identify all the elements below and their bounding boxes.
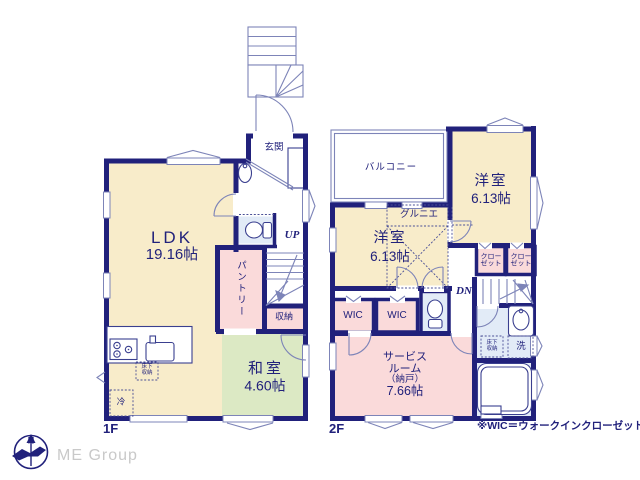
bathtub bbox=[478, 364, 532, 415]
bow-window-mark bbox=[227, 423, 273, 430]
bay-window-mark bbox=[537, 177, 543, 229]
bedroom-left-name: 洋室 bbox=[374, 231, 407, 246]
toilet1-fixture bbox=[246, 222, 272, 238]
washitsu-size: 4.60帖 bbox=[244, 379, 285, 394]
floorplan-page: 玄関 LDK 19.16帖 パントリー UP 収納 和室 4.60帖 床下収納 … bbox=[0, 0, 640, 480]
window bbox=[167, 158, 220, 165]
window bbox=[104, 192, 111, 218]
wic1-label: WIC bbox=[343, 311, 362, 322]
window bbox=[365, 202, 387, 209]
window bbox=[531, 177, 538, 229]
entrance-label: 玄関 bbox=[264, 143, 283, 153]
bay-window-mark bbox=[537, 336, 542, 356]
logo-text: ME Group bbox=[57, 448, 138, 465]
stairs-down-label: DN bbox=[456, 286, 472, 298]
compass-n-label: N bbox=[28, 436, 35, 445]
window bbox=[104, 273, 111, 298]
staircase-down bbox=[483, 279, 533, 304]
floor2-plan bbox=[330, 118, 544, 429]
faucet bbox=[150, 336, 156, 343]
staircase-up bbox=[266, 253, 304, 306]
ldk-name: LDK bbox=[151, 229, 193, 247]
bow-window-mark bbox=[368, 423, 402, 429]
ldk-size: 19.16帖 bbox=[146, 247, 199, 263]
service-room-label: サービス ルーム （納戸） 7.66帖 bbox=[383, 352, 427, 398]
pantry-label: パントリー bbox=[235, 260, 245, 318]
balcony-label: バルコニー bbox=[365, 163, 417, 173]
bedroom-left-size: 6.13帖 bbox=[370, 250, 410, 264]
fridge-label: 冷 bbox=[117, 398, 126, 407]
window bbox=[410, 416, 453, 423]
floor1-label: 1F bbox=[103, 422, 118, 436]
window bbox=[303, 190, 310, 222]
window bbox=[130, 416, 187, 423]
stove bbox=[110, 339, 137, 360]
sink bbox=[146, 343, 174, 362]
exterior-stairs bbox=[248, 27, 303, 97]
entrance-door-arc bbox=[256, 95, 293, 132]
toilet2-fixture bbox=[428, 300, 443, 328]
window bbox=[531, 336, 538, 356]
window bbox=[365, 416, 402, 423]
laundry-label: 洗 bbox=[516, 342, 526, 352]
floorplan-drawing bbox=[0, 0, 640, 480]
storage-label: 収納 bbox=[275, 312, 293, 321]
floor2-label: 2F bbox=[329, 422, 344, 436]
grenier-label: グルニエ bbox=[400, 210, 438, 220]
washroom-basin bbox=[509, 306, 534, 336]
entrance-step-edge bbox=[246, 159, 293, 190]
entrance-cabinet bbox=[288, 148, 305, 188]
window bbox=[330, 343, 337, 370]
closet2-label: クローゼット bbox=[511, 254, 532, 269]
window bbox=[487, 126, 523, 133]
bay-window-mark bbox=[537, 370, 543, 400]
kitchen-counter bbox=[107, 327, 192, 364]
hall-washbasin bbox=[239, 164, 252, 183]
stairs-up-label: UP bbox=[285, 230, 300, 242]
window bbox=[223, 416, 273, 423]
washitsu-name: 和室 bbox=[248, 361, 284, 377]
bedroom-right-name: 洋室 bbox=[475, 174, 508, 189]
window bbox=[330, 228, 337, 252]
bay-window-mark bbox=[309, 190, 315, 222]
underfloor-storage-label2: 床下収納 bbox=[486, 341, 497, 353]
wic-note: ※WIC＝ウォークインクローゼット bbox=[477, 421, 640, 432]
closet1-label: クローゼット bbox=[481, 254, 502, 269]
wic2-label: WIC bbox=[387, 311, 406, 322]
vent-arrow bbox=[97, 372, 105, 383]
bow-window-mark bbox=[413, 423, 453, 429]
window bbox=[303, 345, 310, 377]
underfloor-storage-label: 床下収納 bbox=[141, 365, 152, 377]
bedroom-right-size: 6.13帖 bbox=[471, 192, 511, 206]
bay-window-mark bbox=[487, 118, 523, 125]
bay-window-mark bbox=[167, 151, 220, 158]
bird-logo-icon bbox=[12, 447, 46, 461]
window bbox=[402, 202, 422, 209]
